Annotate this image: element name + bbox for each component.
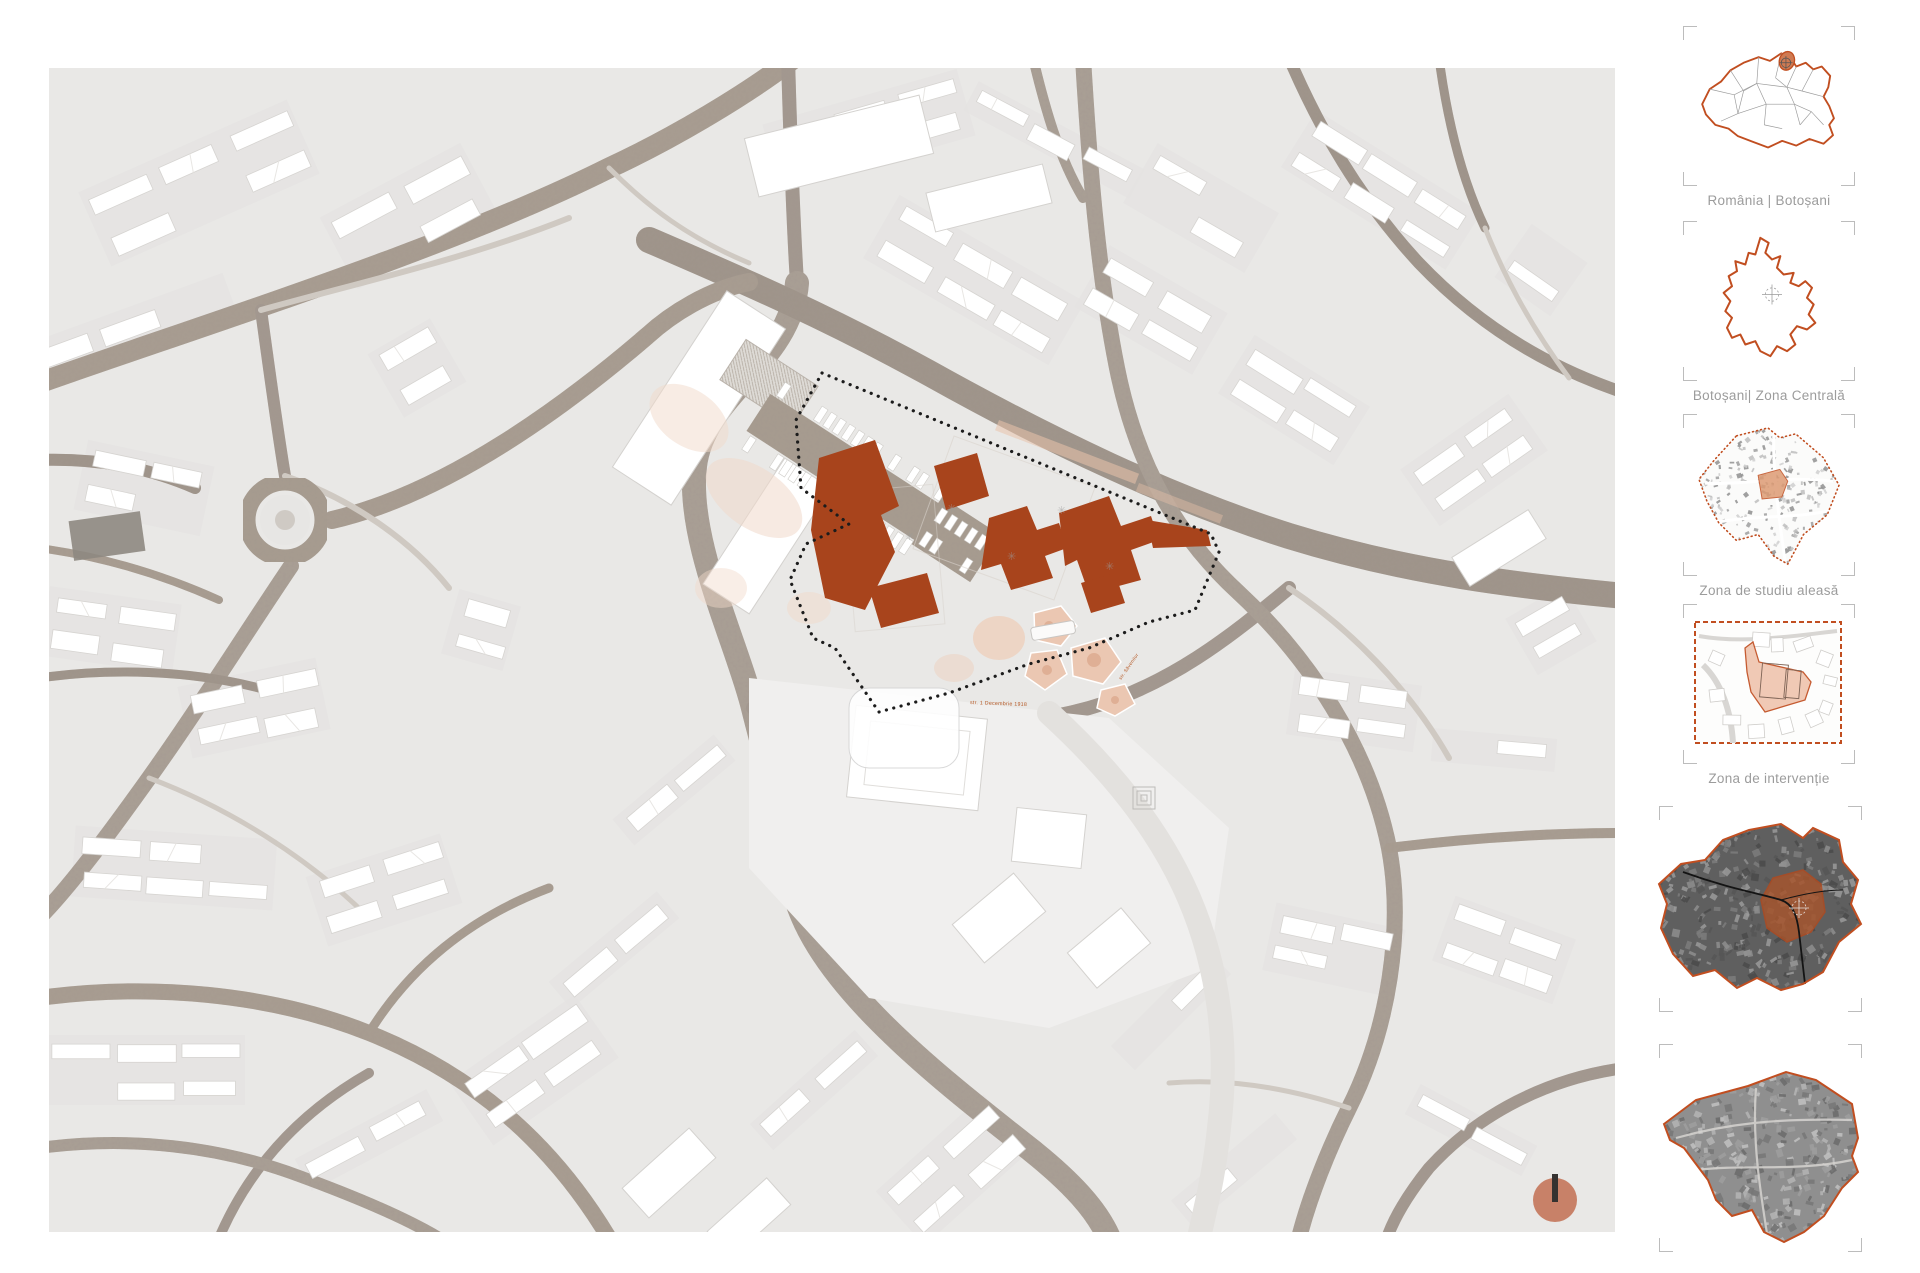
crop-mark-icon — [1683, 26, 1697, 40]
main-site-plan-map: ✳✳ ✳✳✳ str. 1 Decembrie 1918 str. Săveni… — [49, 68, 1615, 1232]
intervention-thumbnail — [1693, 620, 1843, 745]
crop-mark-icon — [1848, 1044, 1862, 1058]
sidebar-item-county-outline: Botoșani| Zona Centrală — [1683, 221, 1855, 381]
context-label: Zona de studiu aleasă — [1683, 583, 1855, 598]
crop-mark-icon — [1683, 604, 1697, 618]
study-zone-thumbnail — [1685, 424, 1853, 572]
crop-mark-icon — [1841, 221, 1855, 235]
crop-mark-icon — [1659, 806, 1673, 820]
crosshair-icon — [1762, 285, 1782, 305]
crop-mark-icon — [1659, 1044, 1673, 1058]
crop-mark-icon — [1683, 750, 1697, 764]
romania-map-thumbnail — [1689, 44, 1849, 170]
sidebar-item-study-zone: Zona de studiu aleasă — [1683, 414, 1855, 576]
crop-mark-icon — [1848, 806, 1862, 820]
svg-text:✳: ✳ — [1007, 551, 1016, 563]
county-outline-thumbnail — [1707, 229, 1832, 375]
crop-mark-icon — [1683, 367, 1697, 381]
context-label: Zona de intervenție — [1683, 771, 1855, 786]
svg-text:✳: ✳ — [1057, 505, 1066, 517]
context-maps-sidebar: România | Botoșani Botoșani| Zona Centra… — [1650, 0, 1890, 1273]
sidebar-item-satellite-study — [1659, 1044, 1862, 1252]
crop-mark-icon — [1841, 26, 1855, 40]
svg-text:✳: ✳ — [905, 531, 914, 543]
sidebar-item-satellite-central — [1659, 806, 1862, 1012]
svg-text:✳: ✳ — [947, 503, 956, 515]
presentation-board: ✳✳ ✳✳✳ str. 1 Decembrie 1918 str. Săveni… — [0, 0, 1920, 1273]
crop-mark-icon — [1848, 998, 1862, 1012]
sidebar-item-romania: România | Botoșani — [1683, 26, 1855, 186]
crop-mark-icon — [1841, 367, 1855, 381]
context-label: România | Botoșani — [1683, 193, 1855, 208]
site-plan-svg: ✳✳ ✳✳✳ str. 1 Decembrie 1918 str. Săveni… — [49, 68, 1615, 1232]
crop-mark-icon — [1683, 172, 1697, 186]
satellite-central-thumbnail — [1653, 820, 1868, 998]
crop-mark-icon — [1659, 998, 1673, 1012]
svg-text:✳: ✳ — [1105, 561, 1114, 573]
context-label: Botoșani| Zona Centrală — [1683, 388, 1855, 403]
crop-mark-icon — [1683, 221, 1697, 235]
crop-mark-icon — [1841, 750, 1855, 764]
satellite-study-thumbnail — [1656, 1060, 1866, 1250]
crop-mark-icon — [1841, 172, 1855, 186]
sidebar-item-intervention: Zona de intervenție — [1683, 604, 1855, 764]
crop-mark-icon — [1841, 604, 1855, 618]
